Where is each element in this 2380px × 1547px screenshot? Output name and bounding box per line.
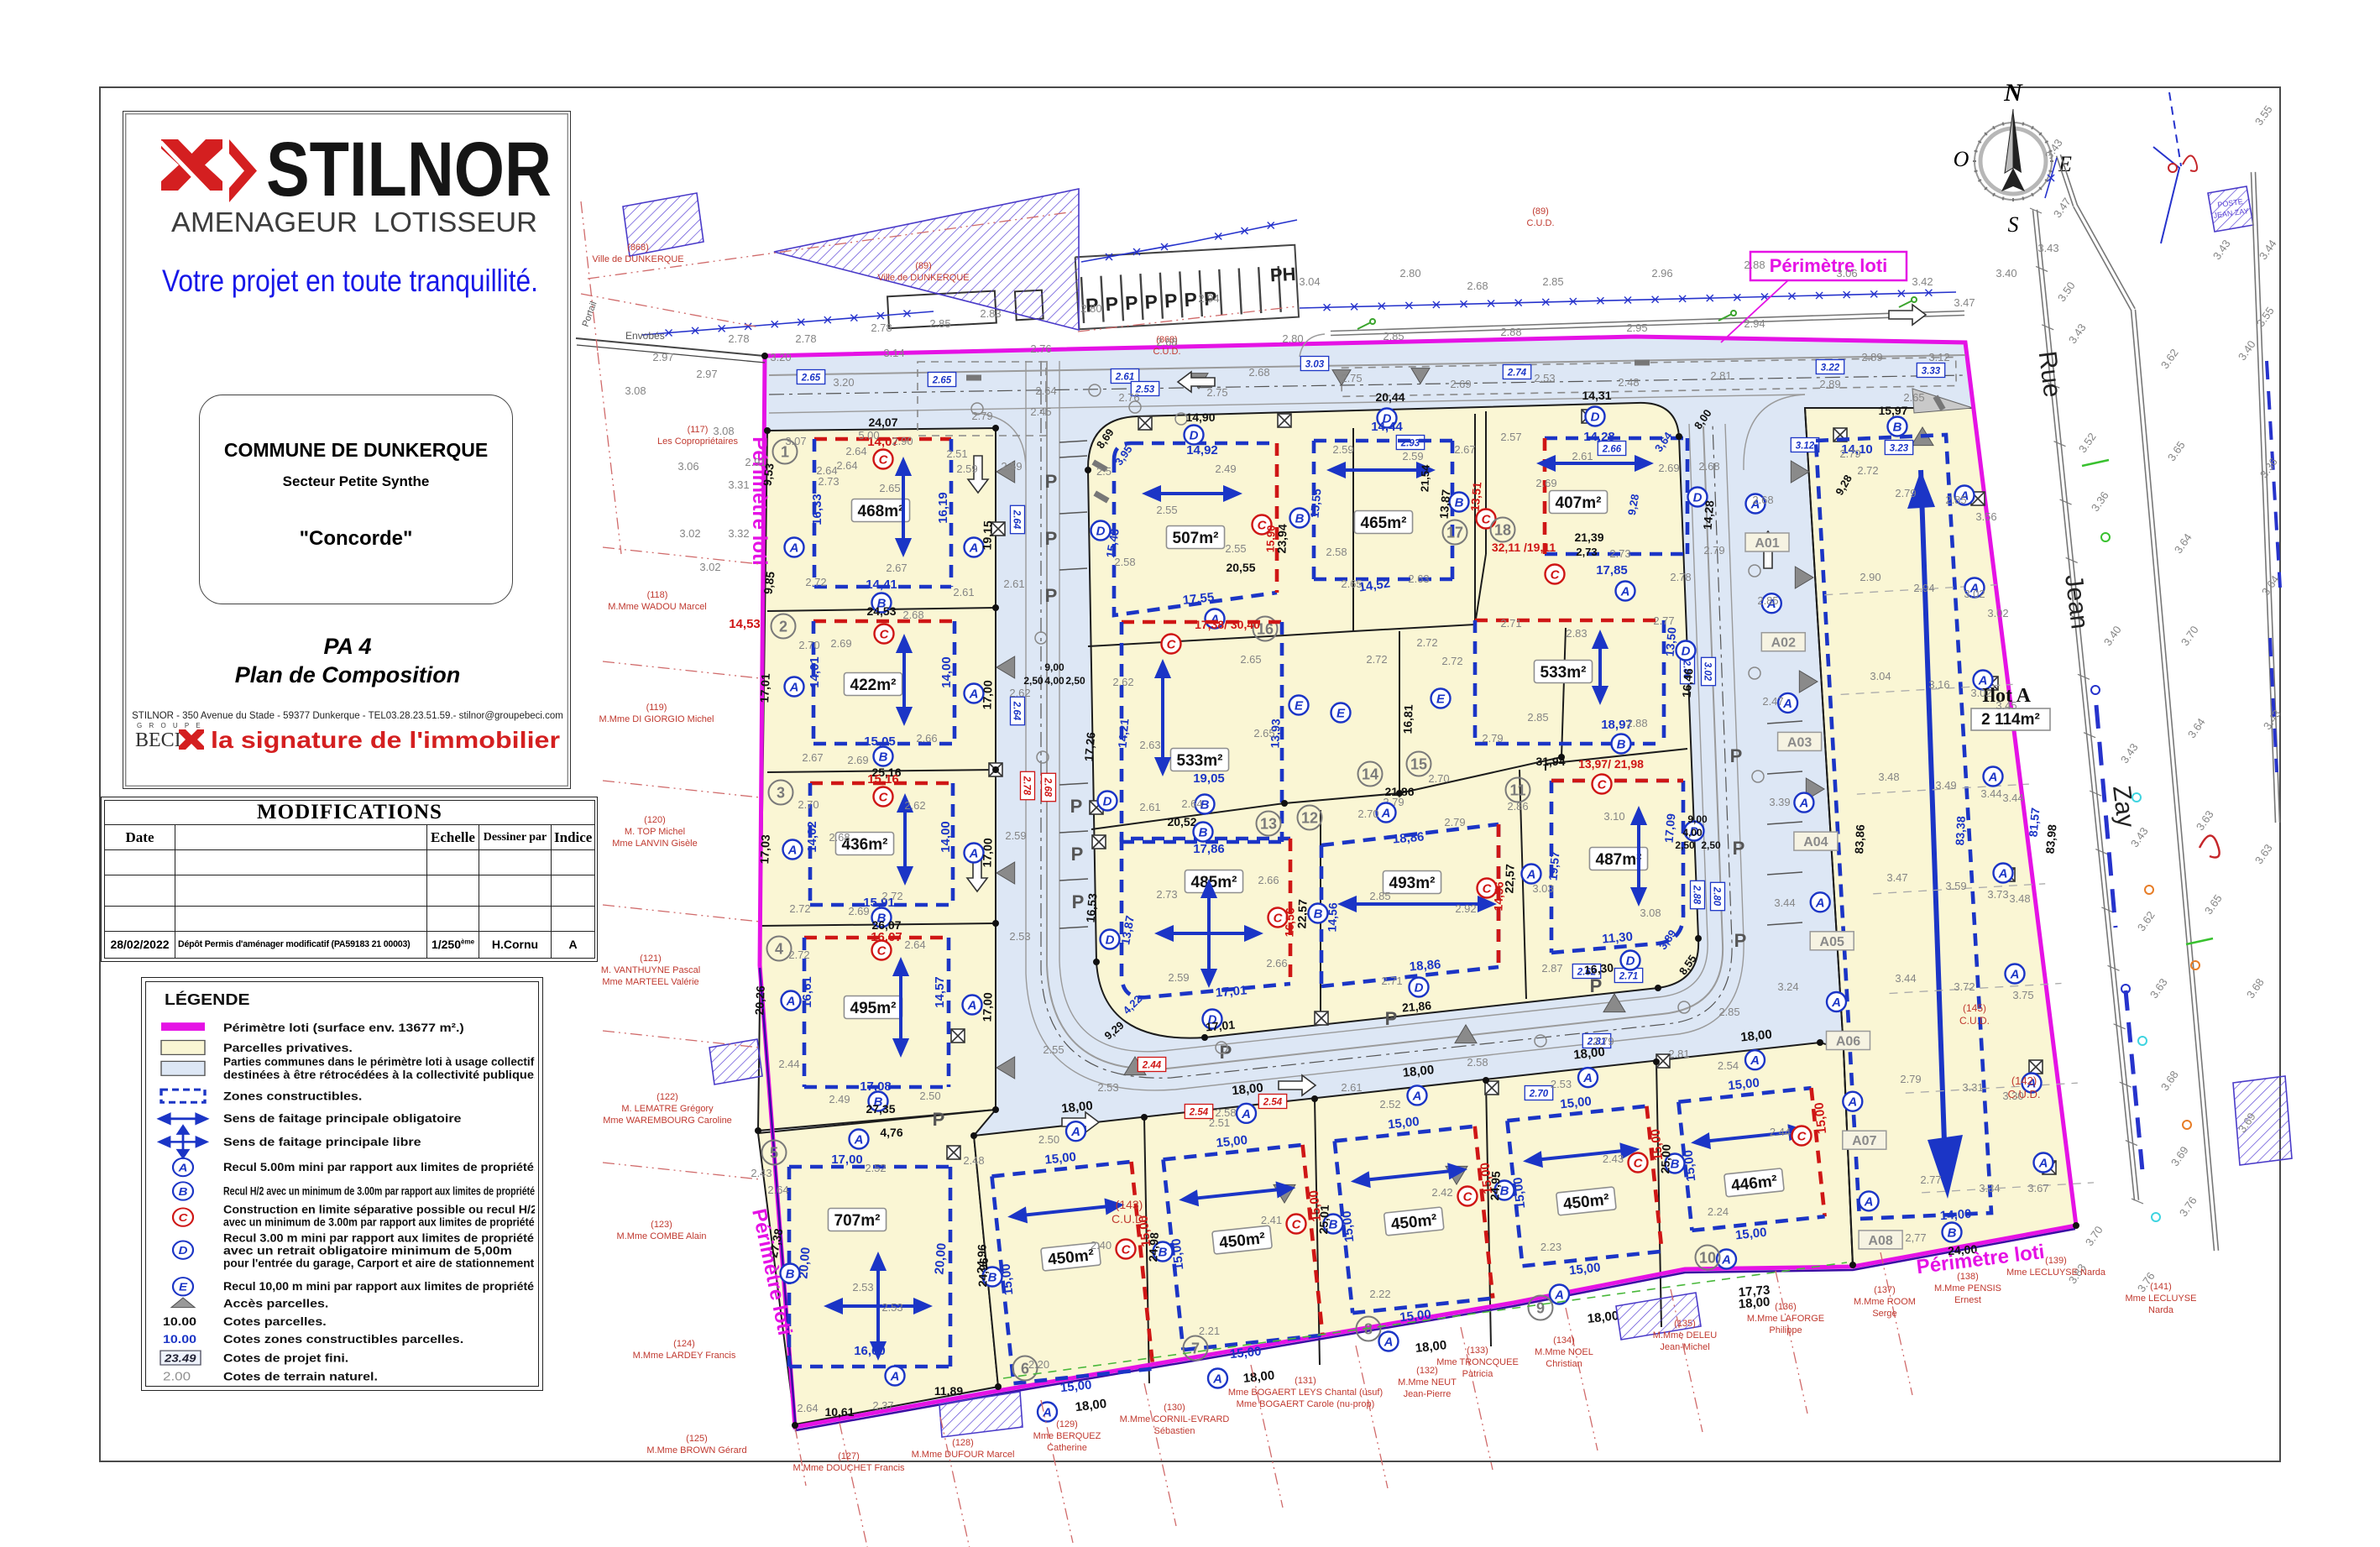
svg-text:A: A <box>1620 585 1630 599</box>
svg-text:C: C <box>877 944 887 959</box>
svg-text:23,94: 23,94 <box>1274 524 1289 554</box>
svg-text:2.61: 2.61 <box>1341 1081 1362 1094</box>
svg-text:A: A <box>854 1133 864 1147</box>
svg-text:2.48: 2.48 <box>963 1154 984 1167</box>
svg-text:2.73: 2.73 <box>1156 888 1177 901</box>
svg-text:M.Mme CORNIL-EVRARD: M.Mme CORNIL-EVRARD <box>1120 1414 1230 1424</box>
svg-text:14,00: 14,00 <box>1939 1207 1972 1224</box>
svg-text:2.58: 2.58 <box>1215 1106 1236 1119</box>
svg-text:(139): (139) <box>2045 1256 2067 1266</box>
svg-text:3.40: 3.40 <box>2101 624 2124 648</box>
svg-text:2.20: 2.20 <box>1028 1358 1049 1371</box>
svg-text:A: A <box>2010 968 2020 982</box>
svg-text:2.81: 2.81 <box>1668 1048 1689 1060</box>
svg-text:2.72: 2.72 <box>1416 636 1437 649</box>
svg-text:20,55: 20,55 <box>1226 561 1255 574</box>
svg-text:2.44: 2.44 <box>778 1058 799 1070</box>
svg-text:A: A <box>1070 1125 1080 1139</box>
svg-text:2.64: 2.64 <box>904 938 925 951</box>
svg-text:2.72: 2.72 <box>1441 655 1462 667</box>
svg-text:A: A <box>1782 697 1792 711</box>
svg-text:2.53: 2.53 <box>852 1281 873 1294</box>
svg-text:17,73: 17,73 <box>1738 1283 1771 1299</box>
svg-text:32,11 /19,11: 32,11 /19,11 <box>1492 541 1556 554</box>
svg-text:10,61: 10,61 <box>824 1405 854 1419</box>
svg-text:A: A <box>2038 1157 2048 1171</box>
svg-text:11,30: 11,30 <box>1602 929 1634 946</box>
svg-text:2.72: 2.72 <box>788 949 809 961</box>
svg-text:(138): (138) <box>1957 1272 1979 1282</box>
svg-text:C.U.D.: C.U.D. <box>1112 1212 1147 1226</box>
svg-text:3.43: 3.43 <box>2210 238 2233 262</box>
svg-text:(89): (89) <box>915 261 932 271</box>
svg-text:2.55: 2.55 <box>1225 542 1246 555</box>
svg-text:2.70: 2.70 <box>1529 1090 1549 1100</box>
svg-text:A: A <box>1212 1372 1222 1387</box>
svg-text:2 114m²: 2 114m² <box>1981 711 2040 729</box>
svg-text:2.81: 2.81 <box>1710 369 1731 382</box>
svg-text:2.88: 2.88 <box>1626 717 1647 729</box>
svg-text:C: C <box>1551 568 1561 583</box>
svg-text:2.86: 2.86 <box>1507 800 1528 813</box>
svg-text:M.Mme PENSIS: M.Mme PENSIS <box>1934 1283 2001 1294</box>
svg-text:2.69: 2.69 <box>1658 462 1679 474</box>
svg-text:18,00: 18,00 <box>1415 1338 1447 1356</box>
svg-text:3.56: 3.56 <box>1975 510 1996 523</box>
svg-text:9,85: 9,85 <box>761 571 777 595</box>
svg-text:2.51: 2.51 <box>946 447 967 460</box>
svg-text:Ernest: Ernest <box>1954 1295 1981 1305</box>
svg-text:M. LEMATRE Grégory: M. LEMATRE Grégory <box>621 1104 714 1114</box>
svg-text:Mme BOGAERT LEYS Chantal (usuf: Mme BOGAERT LEYS Chantal (usuf) <box>1228 1388 1383 1398</box>
svg-text:(127): (127) <box>838 1451 860 1461</box>
svg-text:2.61: 2.61 <box>1139 801 1160 813</box>
svg-text:3.70: 3.70 <box>2179 624 2201 648</box>
svg-text:(132): (132) <box>1416 1366 1438 1376</box>
svg-text:C: C <box>1598 778 1608 792</box>
svg-text:3.44: 3.44 <box>2002 792 2023 804</box>
svg-text:2.69: 2.69 <box>1450 378 1471 390</box>
svg-text:P: P <box>1164 290 1178 312</box>
svg-text:Portail: Portail <box>581 301 599 328</box>
svg-text:M.Mme NEUT: M.Mme NEUT <box>1398 1377 1457 1388</box>
svg-text:2.68: 2.68 <box>829 831 850 844</box>
svg-text:3.62: 3.62 <box>2135 909 2158 933</box>
svg-text:2,50: 2,50 <box>1701 839 1721 851</box>
svg-text:2.80: 2.80 <box>1712 886 1722 907</box>
svg-text:(142): (142) <box>2011 1074 2037 1087</box>
svg-text:24,98: 24,98 <box>1146 1232 1161 1262</box>
svg-text:3.24: 3.24 <box>1777 980 1798 993</box>
svg-text:Mme BERQUEZ: Mme BERQUEZ <box>1033 1431 1101 1441</box>
svg-text:2.23: 2.23 <box>1540 1241 1561 1253</box>
svg-text:3.02: 3.02 <box>1703 662 1713 682</box>
svg-text:3.20: 3.20 <box>770 351 791 363</box>
svg-text:2.65: 2.65 <box>1341 578 1362 590</box>
svg-text:2.58: 2.58 <box>1326 546 1347 558</box>
svg-text:3.32: 3.32 <box>728 527 749 540</box>
svg-text:2.53: 2.53 <box>1009 930 1030 943</box>
svg-text:D: D <box>1693 491 1703 505</box>
svg-text:3.39: 3.39 <box>1769 796 1790 808</box>
svg-text:3.36: 3.36 <box>2257 456 2280 480</box>
svg-text:3.22: 3.22 <box>1821 363 1840 374</box>
svg-text:A: A <box>1384 1335 1394 1350</box>
svg-text:707m²: 707m² <box>834 1212 881 1230</box>
svg-text:14: 14 <box>1362 766 1378 783</box>
svg-text:P: P <box>1071 844 1084 865</box>
svg-text:3.44: 3.44 <box>2257 238 2279 262</box>
svg-text:3.08: 3.08 <box>1640 907 1661 919</box>
svg-text:2.48: 2.48 <box>1618 376 1639 389</box>
svg-text:Ville de DUNKERQUE: Ville de DUNKERQUE <box>592 254 683 264</box>
svg-text:A: A <box>1412 1089 1422 1103</box>
svg-text:3.48: 3.48 <box>2009 892 2030 905</box>
svg-text:D: D <box>1591 410 1600 425</box>
svg-text:B: B <box>1617 738 1626 752</box>
svg-text:14,31: 14,31 <box>1582 389 1611 402</box>
svg-text:507m²: 507m² <box>1173 530 1219 547</box>
svg-text:9,00: 9,00 <box>1687 813 1708 825</box>
svg-text:2.59: 2.59 <box>1332 443 1353 456</box>
svg-text:(122): (122) <box>656 1092 678 1102</box>
svg-text:3.34: 3.34 <box>1979 1182 2000 1194</box>
svg-text:2.69: 2.69 <box>847 754 868 766</box>
svg-text:2.64: 2.64 <box>1181 797 1202 810</box>
svg-text:P: P <box>933 1109 945 1130</box>
svg-text:3.43: 3.43 <box>2118 741 2141 766</box>
svg-text:4,00: 4,00 <box>1044 675 1064 687</box>
svg-text:A: A <box>1847 1095 1857 1110</box>
svg-text:2.66: 2.66 <box>1266 957 1287 969</box>
svg-text:2.79: 2.79 <box>1839 447 1860 460</box>
svg-text:P: P <box>1072 891 1085 912</box>
svg-text:(123): (123) <box>651 1220 672 1230</box>
svg-text:18,00: 18,00 <box>1587 1309 1619 1326</box>
svg-text:17,00: 17,00 <box>831 1152 863 1167</box>
svg-text:(117): (117) <box>688 425 709 435</box>
svg-text:N: N <box>2003 79 2023 107</box>
svg-text:M.Mme DUFOUR Marcel: M.Mme DUFOUR Marcel <box>912 1450 1015 1460</box>
svg-text:2.70: 2.70 <box>1428 772 1449 785</box>
svg-text:18,00: 18,00 <box>1075 1397 1107 1414</box>
svg-text:2,50: 2,50 <box>1065 675 1085 687</box>
svg-text:15: 15 <box>1410 756 1427 773</box>
svg-text:Mme TRONCQUEE: Mme TRONCQUEE <box>1436 1357 1519 1367</box>
svg-text:2.73: 2.73 <box>818 475 839 488</box>
svg-text:533m²: 533m² <box>1177 752 1223 770</box>
svg-text:2.64: 2.64 <box>767 1184 788 1196</box>
svg-text:M.Mme DELEU: M.Mme DELEU <box>1653 1330 1717 1341</box>
svg-text:3.40: 3.40 <box>1996 267 2016 280</box>
svg-text:2.88: 2.88 <box>1692 885 1702 905</box>
svg-text:(124): (124) <box>673 1339 695 1349</box>
svg-text:C: C <box>1634 1157 1644 1171</box>
svg-text:2.59: 2.59 <box>1402 450 1423 463</box>
svg-text:(128): (128) <box>952 1438 974 1448</box>
svg-text:Mme WAREMBOURG Caroline: Mme WAREMBOURG Caroline <box>603 1116 732 1126</box>
svg-text:Jean-Michel: Jean-Michel <box>1660 1342 1709 1352</box>
svg-text:20,00: 20,00 <box>932 1242 949 1275</box>
svg-text:2.68: 2.68 <box>1752 494 1773 506</box>
svg-text:2.79: 2.79 <box>1703 544 1724 557</box>
svg-text:3.20: 3.20 <box>833 376 854 389</box>
svg-text:11,89: 11,89 <box>934 1384 963 1398</box>
svg-text:Rue: Rue <box>2033 350 2066 400</box>
svg-text:2.91: 2.91 <box>745 456 766 468</box>
svg-text:A: A <box>969 541 979 556</box>
svg-text:A: A <box>967 999 977 1013</box>
svg-text:3.02: 3.02 <box>679 527 700 540</box>
svg-text:(121): (121) <box>640 954 662 964</box>
svg-text:C: C <box>879 791 889 805</box>
svg-text:2.5: 2.5 <box>1096 465 1112 478</box>
svg-text:2.83: 2.83 <box>980 307 1001 320</box>
svg-text:P: P <box>1730 745 1743 766</box>
svg-text:P: P <box>1105 293 1119 316</box>
svg-text:2.88: 2.88 <box>1744 259 1765 271</box>
svg-text:3.45: 3.45 <box>1996 699 2016 712</box>
svg-text:A03: A03 <box>1787 735 1812 750</box>
svg-text:B: B <box>1199 826 1208 840</box>
svg-text:14,53: 14,53 <box>729 617 761 631</box>
svg-text:P: P <box>1045 471 1058 492</box>
svg-text:2.53: 2.53 <box>1551 1078 1572 1090</box>
svg-text:3.06: 3.06 <box>1836 267 1857 280</box>
svg-text:2.44: 2.44 <box>1142 1061 1162 1071</box>
svg-text:3.47: 3.47 <box>2051 196 2074 220</box>
svg-text:A05: A05 <box>1820 935 1844 949</box>
svg-text:468m²: 468m² <box>858 503 904 520</box>
svg-text:(125): (125) <box>686 1434 708 1444</box>
svg-text:Serge: Serge <box>1872 1309 1896 1319</box>
svg-text:P: P <box>1734 930 1747 951</box>
svg-text:PH: PH <box>1269 264 1296 286</box>
svg-text:2.76: 2.76 <box>1030 342 1051 355</box>
svg-text:3.48: 3.48 <box>1878 771 1899 783</box>
svg-text:A: A <box>1750 1053 1760 1068</box>
svg-text:P: P <box>1124 291 1138 314</box>
svg-text:Mme LECLUYSE: Mme LECLUYSE <box>2126 1294 2197 1304</box>
svg-text:2.52: 2.52 <box>865 1162 886 1174</box>
svg-text:5: 5 <box>770 1145 778 1162</box>
svg-text:2.68: 2.68 <box>1156 336 1177 348</box>
svg-text:2.58: 2.58 <box>1467 1056 1488 1069</box>
svg-text:Mme BOGAERT Carole (nu-prop): Mme BOGAERT Carole (nu-prop) <box>1237 1399 1375 1409</box>
svg-text:3.06: 3.06 <box>677 460 698 473</box>
svg-text:17,01: 17,01 <box>1215 983 1248 1000</box>
svg-text:3.70: 3.70 <box>2083 1224 2105 1248</box>
svg-text:2.68: 2.68 <box>902 609 923 621</box>
svg-text:3.65: 3.65 <box>2202 892 2225 917</box>
svg-text:17,00: 17,00 <box>980 992 994 1022</box>
svg-text:17,85: 17,85 <box>1596 563 1628 578</box>
svg-text:24,96: 24,96 <box>976 1257 991 1288</box>
svg-text:B: B <box>1893 421 1902 435</box>
svg-text:(89): (89) <box>1532 206 1549 217</box>
svg-text:(136): (136) <box>1775 1302 1797 1312</box>
svg-text:C: C <box>879 453 889 468</box>
svg-text:M. TOP Michel: M. TOP Michel <box>625 827 685 837</box>
svg-text:A: A <box>1988 771 1998 785</box>
svg-text:2.79: 2.79 <box>1444 816 1465 828</box>
svg-text:2.73: 2.73 <box>1609 547 1630 560</box>
svg-text:C: C <box>1797 1130 1807 1144</box>
svg-text:2.72: 2.72 <box>1857 464 1878 477</box>
svg-text:3.02: 3.02 <box>1987 607 2008 619</box>
svg-text:2.85: 2.85 <box>1542 275 1563 288</box>
svg-text:B: B <box>786 1267 795 1282</box>
svg-text:3.67: 3.67 <box>2027 1182 2048 1194</box>
svg-text:24,95: 24,95 <box>1488 1171 1503 1201</box>
svg-text:15,05: 15,05 <box>864 734 896 749</box>
svg-text:2.76: 2.76 <box>1118 391 1139 404</box>
svg-text:22,57: 22,57 <box>1502 864 1516 894</box>
svg-text:3.02: 3.02 <box>699 561 720 573</box>
svg-text:533m²: 533m² <box>1540 664 1587 682</box>
svg-text:(133): (133) <box>1467 1346 1488 1356</box>
svg-text:4,00: 4,00 <box>1682 827 1703 839</box>
svg-text:2.66: 2.66 <box>1602 445 1622 455</box>
svg-text:3.16: 3.16 <box>1928 678 1949 691</box>
svg-text:2.61: 2.61 <box>1115 373 1134 383</box>
svg-text:2.79: 2.79 <box>1482 732 1503 745</box>
svg-text:27,35: 27,35 <box>866 1102 895 1116</box>
svg-text:(130): (130) <box>1164 1403 1185 1413</box>
svg-text:2.21: 2.21 <box>1199 1325 1220 1337</box>
svg-text:2.79: 2.79 <box>1900 1073 1921 1085</box>
svg-text:2.43: 2.43 <box>751 1167 772 1179</box>
svg-text:14,28: 14,28 <box>1701 499 1717 530</box>
svg-text:2.85: 2.85 <box>1527 711 1548 724</box>
svg-text:3.63: 3.63 <box>2252 842 2275 866</box>
svg-text:2.64: 2.64 <box>816 464 837 477</box>
svg-text:3.63: 3.63 <box>2147 976 2170 1001</box>
svg-text:25,01: 25,01 <box>1316 1205 1331 1235</box>
svg-text:3.04: 3.04 <box>1299 275 1320 288</box>
svg-text:2.87: 2.87 <box>1541 962 1562 975</box>
svg-text:2.65: 2.65 <box>879 482 900 494</box>
svg-text:18,00: 18,00 <box>1242 1368 1275 1386</box>
svg-text:14,44: 14,44 <box>1371 420 1403 434</box>
svg-text:2.64: 2.64 <box>845 445 866 457</box>
svg-text:2.53: 2.53 <box>881 1301 902 1314</box>
svg-text:3.65: 3.65 <box>2165 439 2188 463</box>
svg-text:2.72: 2.72 <box>805 576 826 588</box>
svg-text:19,05: 19,05 <box>1193 771 1225 786</box>
svg-text:(131): (131) <box>1295 1376 1316 1386</box>
svg-text:Périmètre loti: Périmètre loti <box>1770 255 1888 276</box>
svg-text:2.50: 2.50 <box>919 1090 940 1102</box>
svg-text:Philippe: Philippe <box>1769 1325 1802 1335</box>
svg-text:2.65: 2.65 <box>932 376 952 386</box>
svg-text:3.02: 3.02 <box>1970 687 1991 699</box>
svg-text:2.89: 2.89 <box>1819 378 1840 390</box>
svg-text:2.59: 2.59 <box>1168 971 1189 984</box>
svg-text:13,51: 13,51 <box>1468 481 1484 512</box>
svg-text:C: C <box>1274 912 1284 926</box>
svg-text:2.66: 2.66 <box>916 732 937 745</box>
svg-text:M.Mme COMBE Alain: M.Mme COMBE Alain <box>617 1231 707 1241</box>
svg-text:3.44: 3.44 <box>1980 787 2001 800</box>
svg-text:3.64: 3.64 <box>2185 716 2208 740</box>
svg-text:2.72: 2.72 <box>789 902 810 915</box>
svg-text:A: A <box>1381 807 1391 821</box>
svg-text:A: A <box>969 687 979 702</box>
svg-text:Mme LECLUYSE Narda: Mme LECLUYSE Narda <box>2006 1267 2106 1278</box>
svg-text:2.54: 2.54 <box>1263 1098 1283 1108</box>
svg-text:2.80: 2.80 <box>1282 332 1303 345</box>
svg-text:2.70: 2.70 <box>1357 807 1378 820</box>
svg-text:14,21: 14,21 <box>1116 718 1132 749</box>
svg-text:Mme MARTEEL Valérie: Mme MARTEEL Valérie <box>602 977 698 987</box>
svg-text:3.64: 3.64 <box>2172 531 2194 556</box>
svg-text:83,86: 83,86 <box>1852 824 1867 855</box>
svg-text:16,33: 16,33 <box>810 494 824 525</box>
svg-text:Envobés: Envobés <box>625 330 665 342</box>
svg-text:2,73: 2,73 <box>1576 546 1597 558</box>
svg-text:B: B <box>1455 496 1464 510</box>
svg-text:2,50: 2,50 <box>1675 839 1695 851</box>
svg-text:14,28: 14,28 <box>1583 430 1615 444</box>
svg-text:2.78: 2.78 <box>795 332 816 345</box>
svg-text:14,02: 14,02 <box>805 821 819 853</box>
svg-text:16,30: 16,30 <box>1583 961 1614 977</box>
svg-text:2.75: 2.75 <box>1341 372 1362 384</box>
svg-text:2.90: 2.90 <box>892 435 913 447</box>
svg-text:2.72: 2.72 <box>881 890 902 902</box>
svg-text:16,53: 16,53 <box>1084 892 1100 923</box>
svg-text:2.74: 2.74 <box>1507 368 1527 379</box>
svg-text:2.65: 2.65 <box>1253 727 1274 740</box>
svg-text:A: A <box>1042 1406 1052 1420</box>
svg-text:2.69: 2.69 <box>1535 477 1556 489</box>
svg-text:3.07: 3.07 <box>785 435 806 447</box>
svg-text:14,00: 14,00 <box>939 656 954 688</box>
svg-text:13,87: 13,87 <box>1437 489 1453 520</box>
svg-text:3.36: 3.36 <box>2089 489 2111 514</box>
svg-text:D: D <box>1626 954 1635 969</box>
svg-text:3.03: 3.03 <box>1305 360 1325 370</box>
svg-text:20,52: 20,52 <box>1167 815 1196 828</box>
svg-text:5.00: 5.00 <box>858 429 879 442</box>
svg-text:16,60: 16,60 <box>854 1344 886 1358</box>
svg-text:14,92: 14,92 <box>1186 443 1218 457</box>
svg-text:C.U.D.: C.U.D. <box>1527 218 1555 228</box>
svg-text:3.42: 3.42 <box>1912 275 1933 288</box>
svg-text:15,16: 15,16 <box>867 772 899 787</box>
svg-text:465m²: 465m² <box>1361 515 1407 532</box>
svg-text:M.Mme NOEL: M.Mme NOEL <box>1535 1347 1593 1357</box>
svg-text:19,15: 19,15 <box>980 520 994 551</box>
svg-text:3.31: 3.31 <box>1962 1081 1983 1094</box>
svg-text:17,03: 17,03 <box>757 834 772 865</box>
svg-text:(120): (120) <box>644 815 666 825</box>
svg-text:17,86: 17,86 <box>1193 842 1225 856</box>
svg-text:2.71: 2.71 <box>1500 617 1521 630</box>
svg-text:83,98: 83,98 <box>2043 823 2059 855</box>
svg-text:14,00: 14,00 <box>939 821 953 853</box>
svg-text:Narda: Narda <box>2148 1305 2174 1315</box>
svg-text:2.55: 2.55 <box>1156 504 1177 516</box>
svg-text:3.12: 3.12 <box>1928 351 1949 363</box>
svg-text:2.55: 2.55 <box>1043 1043 1064 1056</box>
svg-text:20,44: 20,44 <box>1375 390 1404 404</box>
svg-text:2.68: 2.68 <box>1248 366 1269 379</box>
svg-text:2.97: 2.97 <box>696 368 717 380</box>
svg-text:407m²: 407m² <box>1556 494 1602 512</box>
svg-text:Catherine: Catherine <box>1047 1443 1087 1453</box>
